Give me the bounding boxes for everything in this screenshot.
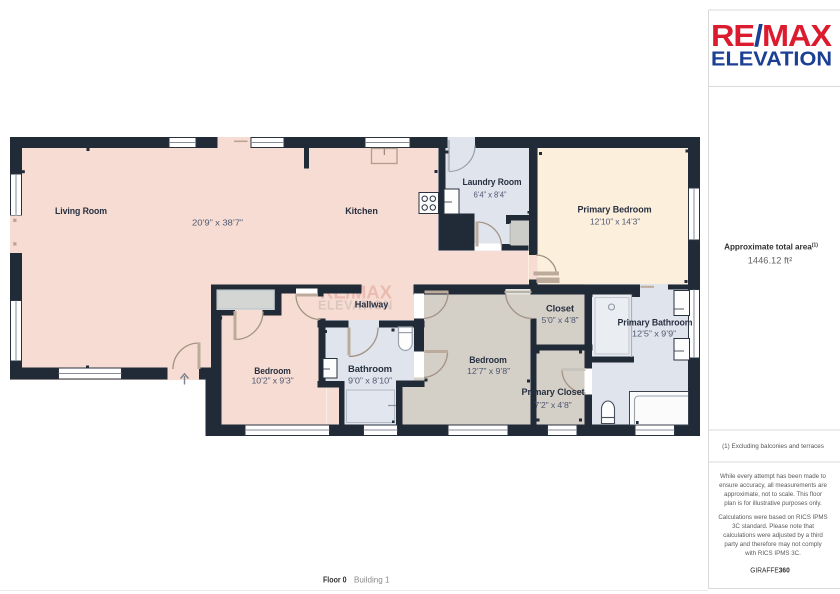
svg-text:10’2” x 9’3”: 10’2” x 9’3”	[252, 376, 294, 386]
svg-text:with RICS IPMS 3C.: with RICS IPMS 3C.	[744, 550, 801, 557]
svg-text:Bedroom: Bedroom	[469, 355, 507, 366]
svg-text:5’0” x 4’8”: 5’0” x 4’8”	[542, 315, 579, 325]
svg-text:ensure accuracy, all measureme: ensure accuracy, all measurements are	[719, 482, 827, 489]
svg-text:approximate, not to scale. Thi: approximate, not to scale. This floor	[724, 491, 822, 498]
svg-text:Calculations were based on RIC: Calculations were based on RICS IPMS	[718, 514, 827, 521]
svg-text:Hallway: Hallway	[355, 300, 389, 311]
svg-text:plan is for illustrative purpo: plan is for illustrative purposes only.	[724, 500, 822, 507]
svg-text:Primary Bedroom: Primary Bedroom	[578, 205, 652, 216]
svg-text:Building 1: Building 1	[354, 575, 390, 585]
svg-text:Primary Bathroom: Primary Bathroom	[618, 318, 693, 329]
svg-text:Floor 0: Floor 0	[323, 575, 347, 585]
svg-text:1446.12 ft²: 1446.12 ft²	[748, 256, 792, 266]
svg-text:Living Room: Living Room	[55, 206, 107, 217]
svg-text:Approximate total area(1): Approximate total area(1)	[724, 243, 818, 252]
svg-text:While every attempt has been m: While every attempt has been made to	[720, 473, 826, 480]
svg-text:12’7” x 9’8”: 12’7” x 9’8”	[467, 366, 510, 376]
svg-text:12’10” x 14’3”: 12’10” x 14’3”	[590, 217, 640, 227]
svg-text:party and therefore may not co: party and therefore may not comply	[724, 541, 822, 548]
svg-text:Kitchen: Kitchen	[345, 206, 378, 217]
svg-text:calculations were adjusted by: calculations were adjusted by a third	[723, 532, 823, 539]
svg-text:7’2” x 4’8”: 7’2” x 4’8”	[535, 400, 572, 410]
svg-text:6’4” x 8’4”: 6’4” x 8’4”	[474, 190, 507, 200]
svg-text:9’0” x 8’10”: 9’0” x 8’10”	[348, 376, 392, 386]
svg-text:3C standard. Please note that: 3C standard. Please note that	[732, 523, 814, 530]
svg-text:GIRAFFE360: GIRAFFE360	[750, 567, 790, 575]
svg-text:Primary Closet: Primary Closet	[522, 387, 586, 398]
svg-text:20’9” x 38’7”: 20’9” x 38’7”	[192, 218, 243, 228]
svg-text:ELEVATION: ELEVATION	[711, 49, 832, 71]
svg-text:12’5” x 9’9”: 12’5” x 9’9”	[632, 329, 676, 339]
svg-text:(1) Excluding balconies and te: (1) Excluding balconies and terraces	[722, 443, 824, 450]
svg-text:Laundry Room: Laundry Room	[463, 177, 522, 188]
svg-text:Bathroom: Bathroom	[348, 364, 392, 375]
svg-text:Closet: Closet	[546, 304, 575, 315]
